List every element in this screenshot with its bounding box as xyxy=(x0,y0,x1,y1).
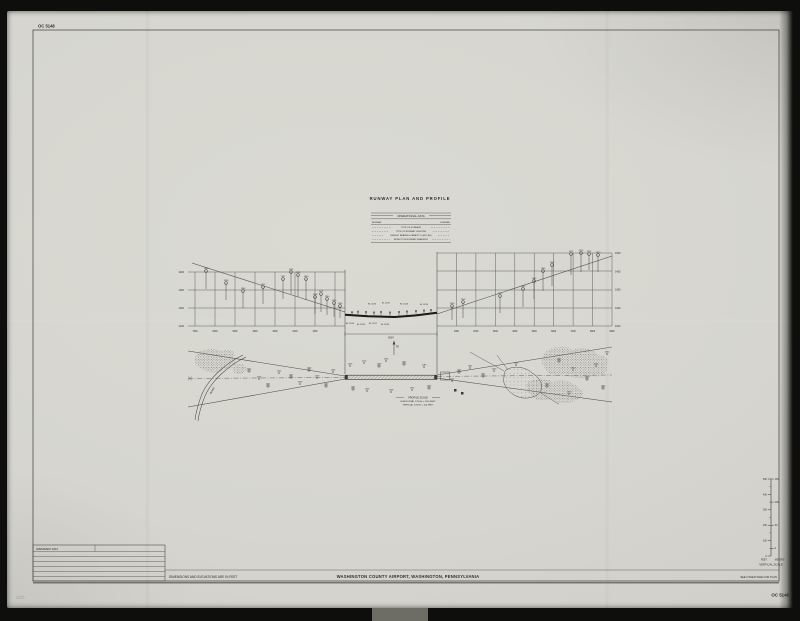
svg-text:3000: 3000 xyxy=(272,331,278,333)
svg-text:1400: 1400 xyxy=(615,270,621,273)
svg-text:7000: 7000 xyxy=(571,331,577,333)
airport-title: WASHINGTON COUNTY AIRPORT, WASHINGTON, P… xyxy=(337,574,480,579)
svg-text:1205: 1205 xyxy=(348,363,353,365)
drawing-layer: OC 5148 RUNWAY PLAN AND PROFILE OPERATIO… xyxy=(0,0,800,621)
svg-text:1239: 1239 xyxy=(298,381,303,383)
left-profile-elev-labels: 1400130012001100 xyxy=(178,271,184,328)
op-col-header-left: RUNWAY xyxy=(372,221,382,224)
svg-text:1190: 1190 xyxy=(427,385,432,387)
chart-number-bottom: OC 5148 xyxy=(771,593,789,598)
svg-text:1199: 1199 xyxy=(377,363,382,365)
svg-text:1330: 1330 xyxy=(224,280,229,282)
svg-text:400: 400 xyxy=(763,494,768,496)
scan-stage: OC 5148 RUNWAY PLAN AND PROFILE OPERATIO… xyxy=(0,0,800,621)
svg-text:1100: 1100 xyxy=(615,325,621,328)
svg-text:1312: 1312 xyxy=(532,278,537,280)
svg-text:4000: 4000 xyxy=(252,331,258,333)
building xyxy=(461,392,464,395)
svg-text:1335: 1335 xyxy=(541,268,546,270)
svg-text:1346: 1346 xyxy=(601,385,606,387)
el-above-0: EL 1186 xyxy=(368,304,377,306)
svg-text:1274: 1274 xyxy=(319,291,324,293)
operational-data-title: OPERATIONAL DATA xyxy=(397,214,425,218)
svg-text:1256: 1256 xyxy=(307,367,312,369)
svg-text:1375: 1375 xyxy=(579,250,584,252)
svg-text:1210: 1210 xyxy=(362,360,367,362)
el-above-1: EL 1185 xyxy=(382,303,391,305)
pencil-note: 4115 xyxy=(16,594,26,600)
svg-text:0: 0 xyxy=(775,548,777,550)
svg-text:9000: 9000 xyxy=(609,331,615,333)
units-note: DIMENSIONS AND ELEVATIONS ARE IN FEET xyxy=(169,575,237,579)
svg-text:1373: 1373 xyxy=(587,251,592,253)
vertical-scale: 5004003002001000 150100500 FEET METERS V… xyxy=(759,479,785,567)
el-below-2: EL 1187 xyxy=(369,323,378,325)
svg-text:1100: 1100 xyxy=(179,325,185,328)
svg-text:1245: 1245 xyxy=(247,368,252,370)
svg-text:1231: 1231 xyxy=(266,383,271,385)
svg-text:5000: 5000 xyxy=(532,331,538,333)
svg-text:100: 100 xyxy=(763,541,768,543)
svg-text:1243: 1243 xyxy=(338,303,343,305)
svg-text:1231: 1231 xyxy=(468,365,473,367)
svg-text:7000: 7000 xyxy=(192,331,198,333)
svg-text:4000: 4000 xyxy=(512,331,518,333)
el-above-2: EL 1184 xyxy=(400,304,409,306)
svg-text:1000: 1000 xyxy=(454,331,460,333)
svg-text:1300: 1300 xyxy=(615,289,621,292)
op-row-1: TYPE OF RUNWAY LIGHTING xyxy=(396,230,427,233)
svg-text:1300: 1300 xyxy=(241,288,246,290)
building xyxy=(454,389,457,392)
svg-text:1196: 1196 xyxy=(384,358,389,360)
svg-text:1246: 1246 xyxy=(331,369,336,371)
svg-text:1240: 1240 xyxy=(450,303,455,305)
runway-length-dimension: 5004' xyxy=(345,332,437,339)
svg-text:1400: 1400 xyxy=(178,271,184,274)
svg-text:1249: 1249 xyxy=(514,362,519,364)
svg-text:500: 500 xyxy=(763,479,768,481)
svg-text:300: 300 xyxy=(763,510,768,512)
svg-text:1312: 1312 xyxy=(261,284,266,286)
amendment-table: AMENDMENT DATA xyxy=(33,545,165,581)
svg-text:1198: 1198 xyxy=(389,389,394,391)
svg-text:2000: 2000 xyxy=(292,331,298,333)
svg-text:1372: 1372 xyxy=(569,251,574,253)
svg-text:200: 200 xyxy=(763,525,768,527)
svg-text:1251: 1251 xyxy=(277,370,282,372)
svg-text:1352: 1352 xyxy=(605,351,610,353)
runway-profile: EL 1186 EL 1185 EL 1184 EL 1183 EL 1184 … xyxy=(345,252,437,374)
svg-text:6000: 6000 xyxy=(551,331,557,333)
profile-scale-vertical: VERTICAL 1 INCH = 100 FEET xyxy=(403,403,434,406)
svg-text:1237: 1237 xyxy=(481,373,486,375)
op-row-2: WEIGHT BEARING CAPACITY (000 LBS) xyxy=(391,234,432,237)
svg-text:1242: 1242 xyxy=(324,383,329,385)
svg-text:1330: 1330 xyxy=(304,276,309,278)
runway-plan xyxy=(345,372,450,380)
svg-text:1500: 1500 xyxy=(615,252,621,255)
svg-text:1252: 1252 xyxy=(461,299,466,301)
approach-slope-right xyxy=(437,256,612,314)
right-profile-trees: 1240125212721292131213351346137213751373… xyxy=(450,250,601,320)
el-below-0: EL 1184 xyxy=(346,323,355,325)
svg-text:1203: 1203 xyxy=(365,388,370,390)
profile-scale-title: PROFILE SCALE xyxy=(408,396,428,399)
svg-text:1200: 1200 xyxy=(615,307,621,310)
vertical-scale-unit-left: FEET xyxy=(761,560,767,562)
svg-text:1189: 1189 xyxy=(422,364,427,366)
left-profile-grid xyxy=(188,272,345,326)
amendment-table-title: AMENDMENT DATA xyxy=(36,548,58,551)
left-profile-station-labels: 7000600050004000300020001000 xyxy=(192,331,318,333)
reverse-note: SEE OTHER SIDE FOR PLAN xyxy=(740,575,777,579)
svg-text:1327: 1327 xyxy=(281,276,286,278)
svg-text:1216: 1216 xyxy=(450,378,455,380)
svg-text:3000: 3000 xyxy=(493,331,499,333)
profile-scale-legend: PROFILE SCALE HORIZONTAL 1 INCH = 1000 F… xyxy=(396,396,440,406)
neatline xyxy=(33,30,779,583)
svg-text:1346: 1346 xyxy=(550,262,555,264)
el-above-3: EL 1183 xyxy=(420,304,429,306)
svg-text:1260: 1260 xyxy=(325,296,330,298)
left-profile-trees: 1368133013001312132713451338133012681274… xyxy=(204,268,343,318)
profile-scale-horizontal: HORIZONTAL 1 INCH = 1000 FEET xyxy=(400,400,436,403)
svg-text:8000: 8000 xyxy=(590,331,596,333)
vertical-scale-caption: VERTICAL SCALE xyxy=(759,563,783,567)
pond xyxy=(504,367,542,398)
drawing-title: RUNWAY PLAN AND PROFILE xyxy=(370,196,451,201)
runway-length-label: 5004' xyxy=(388,336,394,339)
svg-text:1338: 1338 xyxy=(296,272,301,274)
woods-west-small xyxy=(233,364,247,374)
op-col-header-right: RUNWAY xyxy=(441,221,451,224)
plan-view: ROAD 12451238123112511247123912561249124… xyxy=(188,347,612,421)
svg-text:1250: 1250 xyxy=(332,300,337,302)
svg-text:1249: 1249 xyxy=(315,375,320,377)
chart-number-top: OC 5148 xyxy=(38,24,55,29)
north-arrow-label: N xyxy=(396,345,399,349)
vertical-scale-feet-labels: 5004003002001000 xyxy=(763,479,768,558)
vertical-scale-unit-right: METERS xyxy=(775,560,785,562)
el-below-3: EL 1188 xyxy=(381,324,390,326)
runway-profile-line xyxy=(345,313,437,317)
svg-text:1292: 1292 xyxy=(521,286,526,288)
svg-text:1268: 1268 xyxy=(313,294,318,296)
svg-text:1195: 1195 xyxy=(410,387,415,389)
svg-text:2000: 2000 xyxy=(473,331,479,333)
north-arrow: N xyxy=(393,341,400,356)
svg-text:5000: 5000 xyxy=(232,331,238,333)
svg-text:1272: 1272 xyxy=(498,293,503,295)
right-profile-station-labels: 100020003000400050006000700080009000 xyxy=(454,331,615,333)
svg-text:1207: 1207 xyxy=(351,386,356,388)
svg-text:1192: 1192 xyxy=(402,361,407,363)
svg-text:1247: 1247 xyxy=(289,374,294,376)
svg-text:1000: 1000 xyxy=(312,331,318,333)
svg-text:1200: 1200 xyxy=(178,307,184,310)
svg-text:1243: 1243 xyxy=(492,368,497,370)
operational-data-table: OPERATIONAL DATA RUNWAY RUNWAY TYPE OF S… xyxy=(371,213,451,243)
svg-text:0: 0 xyxy=(766,556,768,558)
op-row-3: EFFECTIVE RUNWAY GRADIENT xyxy=(394,238,429,241)
svg-text:1300: 1300 xyxy=(178,289,184,292)
svg-text:1345: 1345 xyxy=(289,269,294,271)
el-below-1: EL 1185 xyxy=(357,324,366,326)
svg-text:50: 50 xyxy=(775,525,778,527)
svg-text:6000: 6000 xyxy=(212,331,218,333)
woods-west xyxy=(194,349,235,373)
op-row-0: TYPE OF SURFACE xyxy=(401,226,422,229)
right-profile-elev-labels: 15001400130012001100 xyxy=(615,252,621,328)
